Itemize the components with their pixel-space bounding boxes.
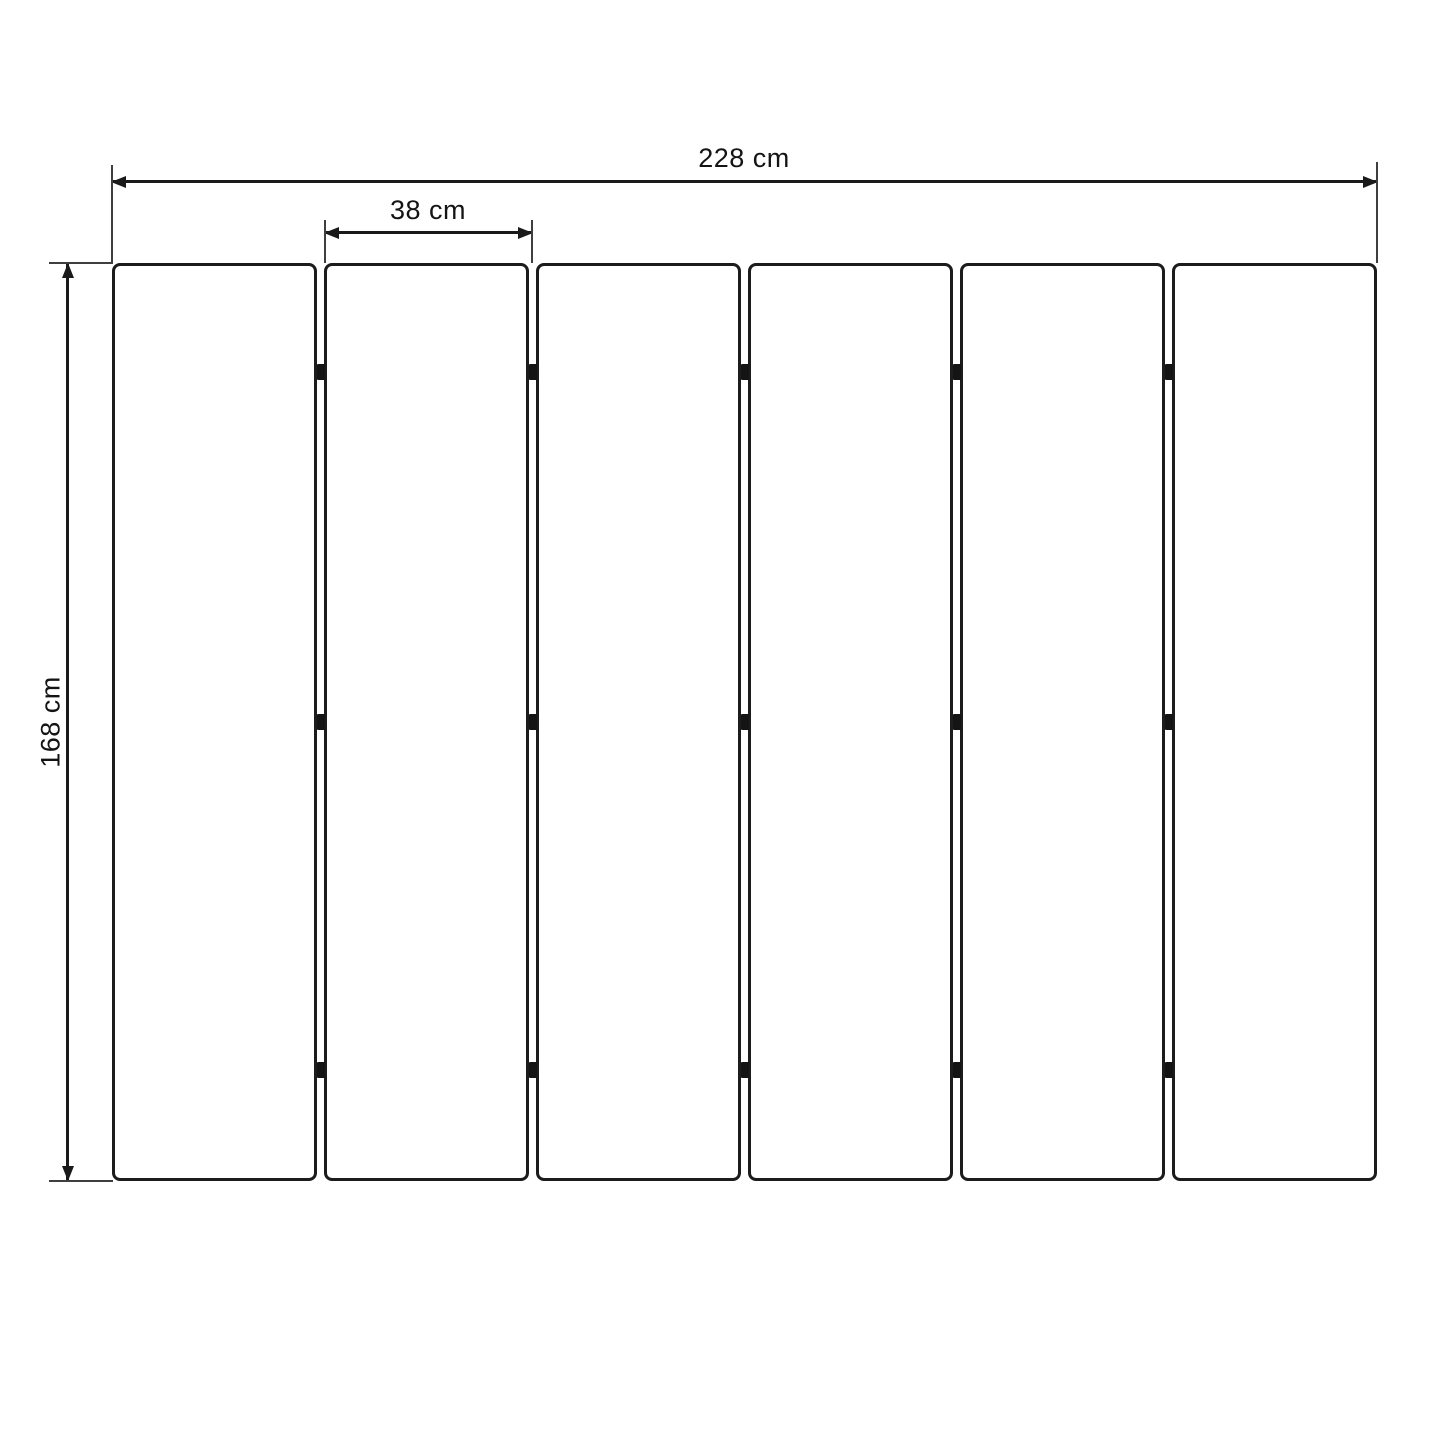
panel-1 bbox=[112, 263, 317, 1181]
hinge-gap3-row3 bbox=[741, 1062, 749, 1078]
hinge-gap5-row1 bbox=[1165, 364, 1173, 380]
panel-width-dimension-line bbox=[325, 231, 532, 234]
total-width-dimension-label: 228 cm bbox=[698, 143, 790, 174]
hinge-gap1-row2 bbox=[317, 714, 325, 730]
arrow-down-icon bbox=[62, 1166, 74, 1181]
extension-line-panel-left bbox=[324, 220, 326, 263]
arrow-left-icon bbox=[324, 227, 339, 239]
extension-line-total-right bbox=[1376, 162, 1378, 263]
extension-line-total-left bbox=[111, 165, 113, 263]
hinge-gap4-row3 bbox=[953, 1062, 961, 1078]
arrow-left-icon bbox=[111, 176, 126, 188]
hinge-gap4-row2 bbox=[953, 714, 961, 730]
height-dimension-line bbox=[66, 264, 69, 1180]
panel-width-dimension-label: 38 cm bbox=[390, 195, 466, 226]
extension-line-height-top bbox=[49, 262, 113, 264]
arrow-up-icon bbox=[62, 263, 74, 278]
hinge-gap2-row2 bbox=[529, 714, 537, 730]
panel-6 bbox=[1172, 263, 1377, 1181]
height-dimension-label: 168 cm bbox=[36, 676, 67, 768]
extension-line-height-bottom bbox=[49, 1180, 113, 1182]
panel-2 bbox=[324, 263, 529, 1181]
hinge-gap1-row1 bbox=[317, 364, 325, 380]
hinge-gap3-row1 bbox=[741, 364, 749, 380]
hinge-gap3-row2 bbox=[741, 714, 749, 730]
hinge-gap1-row3 bbox=[317, 1062, 325, 1078]
panel-5 bbox=[960, 263, 1165, 1181]
panel-3 bbox=[536, 263, 741, 1181]
hinge-gap5-row2 bbox=[1165, 714, 1173, 730]
dimension-diagram: 228 cm 38 cm 168 cm bbox=[0, 0, 1445, 1445]
panel-4 bbox=[748, 263, 953, 1181]
hinge-gap2-row3 bbox=[529, 1062, 537, 1078]
hinge-gap5-row3 bbox=[1165, 1062, 1173, 1078]
total-width-dimension-line bbox=[112, 180, 1377, 183]
hinge-gap2-row1 bbox=[529, 364, 537, 380]
hinge-gap4-row1 bbox=[953, 364, 961, 380]
extension-line-panel-right bbox=[531, 220, 533, 263]
